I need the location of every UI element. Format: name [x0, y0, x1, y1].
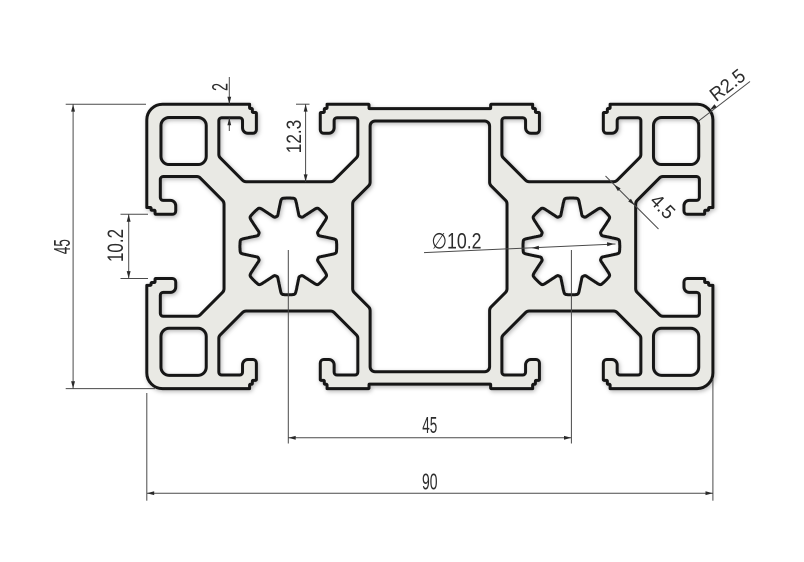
svg-text:10.2: 10.2 [103, 229, 128, 262]
svg-text:90: 90 [422, 468, 438, 494]
svg-text:2: 2 [208, 83, 233, 91]
svg-text:45: 45 [49, 239, 75, 254]
svg-text:∅10.2: ∅10.2 [432, 229, 482, 254]
svg-text:12.3: 12.3 [283, 120, 306, 154]
svg-text:45: 45 [422, 412, 437, 438]
